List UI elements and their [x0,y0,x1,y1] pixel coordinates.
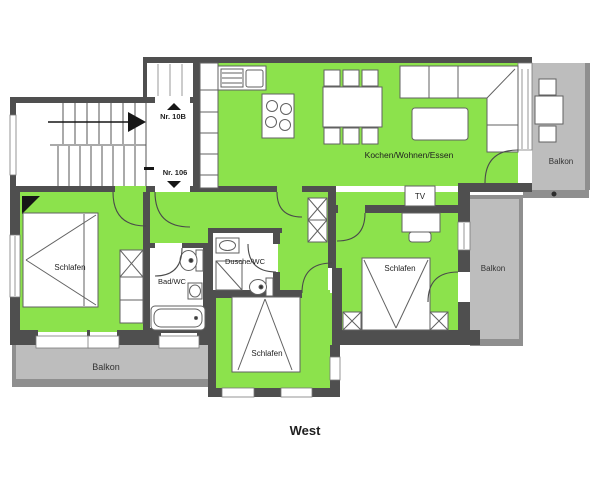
balcony-border [470,195,523,199]
wall-segment [335,205,338,213]
window [330,357,340,380]
nightstand [430,312,448,330]
room-hall-strip [148,233,208,243]
dining-set [323,70,382,144]
wall-segment [208,228,282,233]
kitchen-sink [218,66,266,90]
chair [362,70,378,86]
label-tv: TV [415,192,426,201]
window [10,115,16,175]
desk-chair [409,232,431,242]
wall-segment [193,57,200,192]
wall-segment [10,97,16,115]
door-gap [337,205,365,213]
wall-segment [145,243,155,248]
wall-segment [332,330,480,345]
drain-dot [195,317,198,320]
wall-segment [208,228,213,292]
washbasin-bowl [190,285,201,297]
label-balcony-top-right: Balkon [549,157,573,166]
balcony-chair [539,126,556,142]
wardrobe-hall [308,198,327,242]
arrow-down-icon [167,181,181,188]
floorplan-page: Nr. 10B Nr. 106 Kochen/Wohnen/Essen Schl… [0,0,600,490]
label-balcony-bottom-left: Balkon [92,362,120,372]
unit-number-lower: Nr. 106 [163,168,188,177]
window-sill [159,336,199,348]
wall-segment [328,186,336,268]
label-shower-wc: Dusche/WC [225,257,266,266]
plan-dot [552,192,557,197]
chair [324,128,340,144]
door-gap [277,186,302,192]
coffee-table [412,108,468,140]
balcony-table [535,96,563,124]
label-balcony-mid-right: Balkon [481,264,505,273]
wall-segment [458,192,470,222]
toilet-dot [189,259,193,263]
wall-segment [208,388,222,397]
chair [343,128,359,144]
door-gap [302,290,330,298]
bed-left [23,213,98,307]
wall-segment [193,57,532,63]
label-kitchen-living-dining: Kochen/Wohnen/Essen [365,150,454,160]
wall-segment [10,186,115,192]
room-living-strip [335,192,458,205]
toilet [250,280,267,295]
window [222,388,254,397]
door-gap [458,272,470,302]
balcony-border [12,379,210,387]
window-wall [518,63,532,150]
wall-segment [10,175,16,192]
bed-bottom [232,297,300,372]
floorplan-drawing: Nr. 10B Nr. 106 Kochen/Wohnen/Essen Schl… [0,0,600,490]
label-bedroom-right: Schlafen [384,264,415,273]
washbasin-bowl [220,241,236,251]
arrow-up-icon [167,103,181,110]
label-bedroom-bottom: Schlafen [251,349,282,358]
desk [402,213,440,232]
compass-label: West [290,423,321,438]
wall-segment [143,57,147,103]
wardrobe-left [120,250,143,323]
wall-segment [10,97,155,103]
wall-segment [143,57,200,63]
stair-treads-lower [58,146,135,186]
wall-segment [273,233,280,244]
toilet-tank [266,278,273,296]
chair [362,128,378,144]
wall-segment [330,380,340,397]
balcony-border [585,63,590,190]
wall-segment [146,186,155,192]
window-sill [88,336,119,348]
wall-segment [330,345,340,357]
label-bedroom-left: Schlafen [54,263,85,272]
dining-table [323,87,382,127]
toilet-dot [259,285,263,289]
window-sill [36,336,89,348]
tick-mark [144,167,154,170]
balcony-border [519,198,523,341]
stair-treads-upper [63,103,135,144]
kitchen-stove [262,94,294,138]
kitchen-counter [200,63,218,188]
nightstand [343,312,361,330]
wall-segment [254,388,281,397]
wall-segment [143,192,150,333]
stair-direction-arrow [128,112,146,132]
chair [343,70,359,86]
wall-segment [10,192,20,235]
label-bath-wc: Bad/WC [158,277,187,286]
wall-segment [10,330,38,345]
balcony-border [12,345,16,381]
window [281,388,312,397]
door-gap [518,150,532,183]
wall-segment [117,330,161,345]
wall-segment [458,183,532,192]
wall-segment [458,250,470,272]
balcony-chair [539,79,556,95]
unit-number-upper: Nr. 10B [160,112,186,121]
chair [324,70,340,86]
door-gap [115,186,146,192]
